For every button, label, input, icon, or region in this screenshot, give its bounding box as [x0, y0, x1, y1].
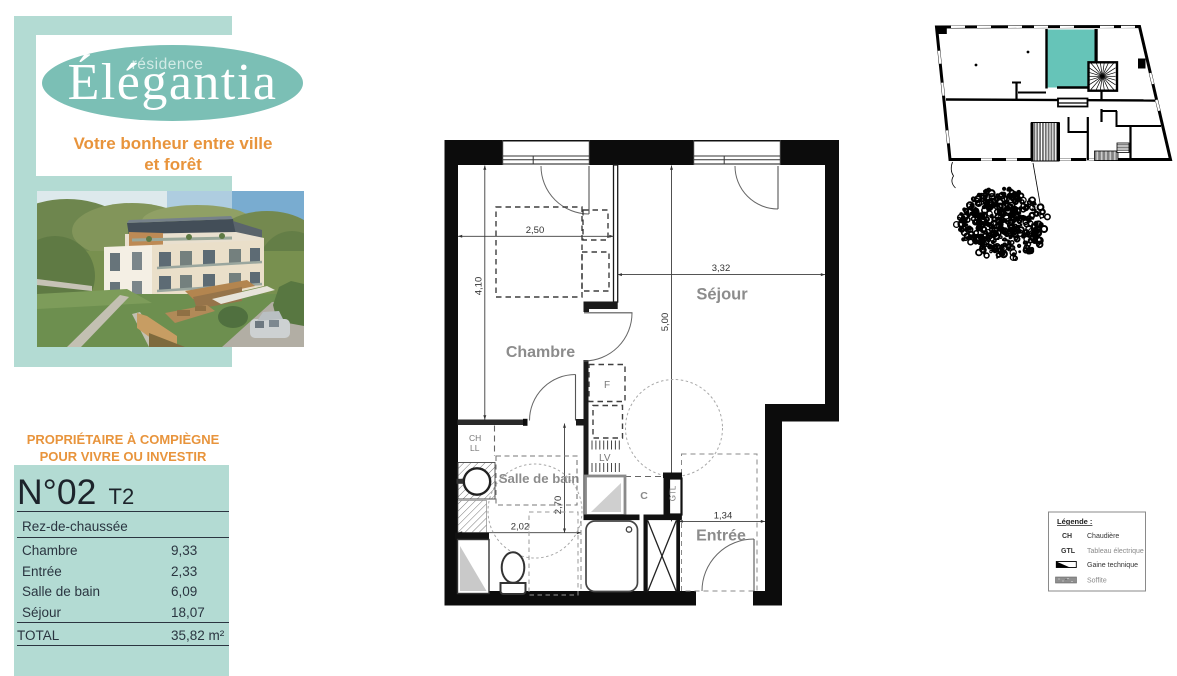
svg-text:Tableau électrique: Tableau électrique — [1087, 548, 1144, 555]
svg-text:GTL: GTL — [1061, 548, 1076, 555]
svg-text:Gaine technique: Gaine technique — [1087, 562, 1138, 569]
svg-text:LV: LV — [599, 453, 611, 464]
svg-text:LL: LL — [470, 443, 480, 453]
svg-text:Entrée: Entrée — [696, 528, 746, 545]
svg-text:F: F — [604, 380, 610, 391]
svg-text:GTL: GTL — [669, 485, 678, 501]
svg-text:2,50: 2,50 — [526, 225, 545, 236]
svg-text:Soffite: Soffite — [1087, 578, 1107, 585]
svg-text:Chaudière: Chaudière — [1087, 533, 1119, 540]
svg-text:Légende :: Légende : — [1057, 517, 1092, 526]
svg-text:CH: CH — [1062, 533, 1072, 540]
svg-text:4,10: 4,10 — [474, 277, 485, 296]
svg-text:5,00: 5,00 — [660, 313, 671, 332]
svg-text:CH: CH — [469, 433, 481, 443]
svg-text:3,32: 3,32 — [712, 263, 731, 274]
svg-text:C: C — [640, 490, 648, 502]
svg-text:Chambre: Chambre — [506, 344, 575, 361]
svg-text:2,02: 2,02 — [511, 522, 530, 533]
svg-text:Salle de bain: Salle de bain — [499, 471, 580, 486]
svg-text:1,34: 1,34 — [714, 510, 733, 521]
svg-text:Séjour: Séjour — [696, 286, 748, 304]
